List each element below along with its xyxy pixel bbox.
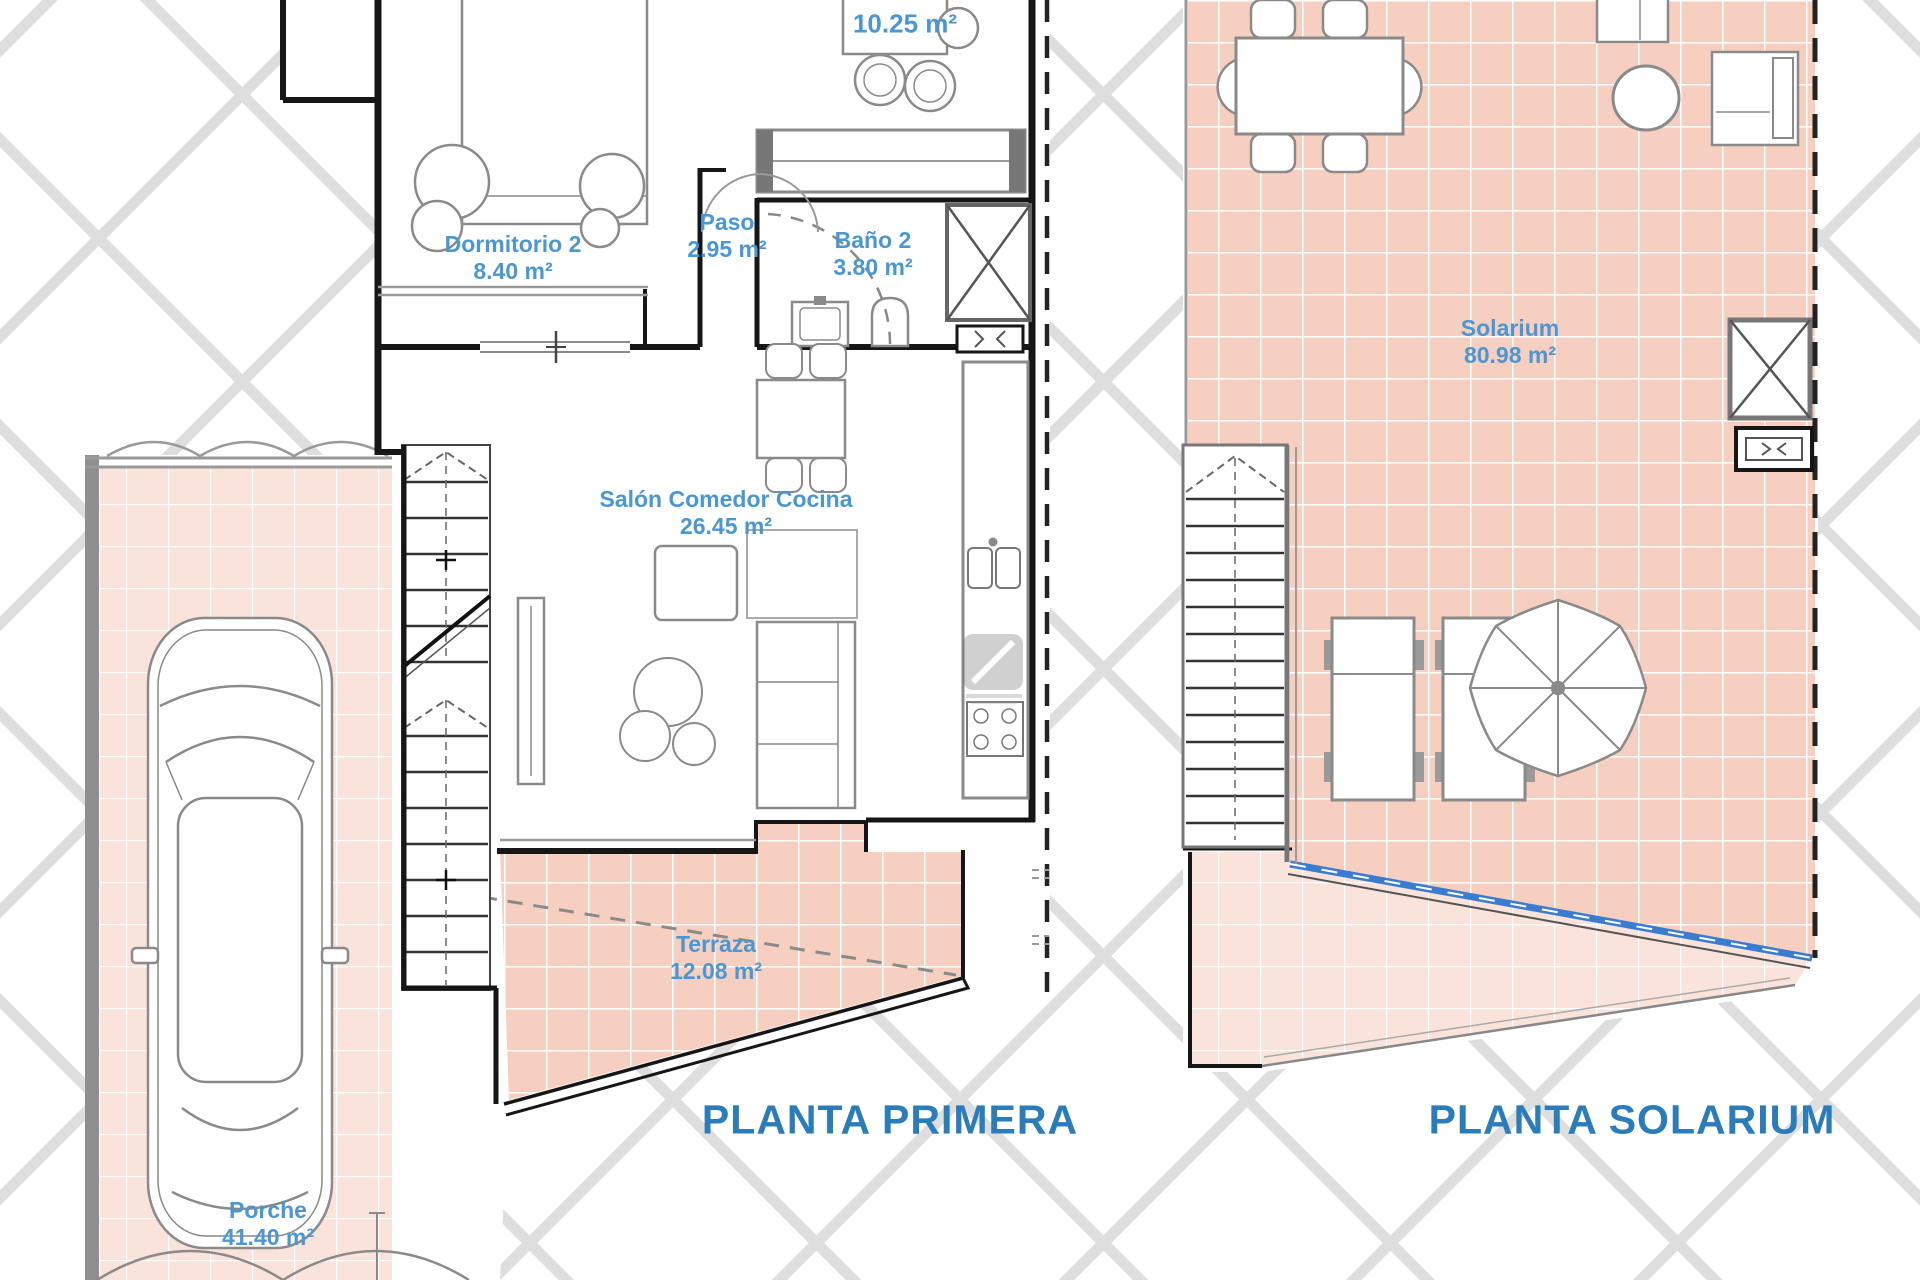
room-area: 80.98 m² (1461, 342, 1559, 369)
room-name: Dormitorio 2 (445, 231, 582, 258)
room-name: Solarium (1461, 315, 1559, 342)
floorplan-drawing (0, 0, 1920, 1280)
roof-vent (1736, 428, 1812, 470)
solarium-bar (1597, 0, 1668, 42)
planta-solarium-plan (1183, 0, 1818, 1072)
stairs-solarium (1183, 445, 1296, 864)
salon-dining-set (757, 344, 846, 492)
room-label-terraza: Terraza 12.08 m² (670, 931, 762, 985)
room-label-porche: Porche 41.40 m² (222, 1197, 314, 1251)
skylight (1730, 320, 1810, 418)
wardrobe (757, 130, 1025, 192)
rug (747, 530, 857, 618)
parasol (1470, 600, 1646, 776)
round-chair (1613, 66, 1679, 130)
room-area: 2.95 m² (687, 236, 766, 263)
room-label-upper-bedroom: 10.25 m² (853, 11, 957, 38)
stairs-primera (402, 445, 490, 990)
armchair (655, 546, 737, 620)
hob (967, 702, 1023, 756)
sofa (757, 622, 855, 808)
room-name: Salón Comedor Cocina (599, 486, 852, 513)
room-label-paso: Paso 2.95 m² (687, 209, 766, 263)
room-name: Baño 2 (833, 227, 912, 254)
car (132, 618, 348, 1248)
plan-title-solarium: PLANTA SOLARIUM (1429, 1097, 1836, 1144)
planta-primera-plan (85, 0, 1050, 1280)
bath-vent (957, 326, 1023, 352)
room-area: 26.45 m² (599, 513, 852, 540)
kitchen-counter (963, 362, 1028, 798)
sun-lounger-1 (1324, 618, 1424, 800)
room-label-solarium: Solarium 80.98 m² (1461, 315, 1559, 369)
room-area: 41.40 m² (222, 1224, 314, 1251)
plan-title-primera: PLANTA PRIMERA (702, 1097, 1078, 1144)
room-area: 3.80 m² (833, 254, 912, 281)
room-area: 12.08 m² (670, 958, 762, 985)
room-label-bano2: Baño 2 3.80 m² (833, 227, 912, 281)
kitchen-sink (968, 548, 992, 588)
room-name: Porche (222, 1197, 314, 1224)
room-area: 8.40 m² (445, 258, 582, 285)
room-label-dormitorio2: Dormitorio 2 8.40 m² (445, 231, 582, 285)
room-name: Terraza (670, 931, 762, 958)
room-area: 10.25 m² (853, 11, 957, 38)
porche-left-wall (85, 455, 99, 1280)
lounge-chair (1712, 52, 1798, 145)
room-label-salon: Salón Comedor Cocina 26.45 m² (599, 486, 852, 540)
room-name: Paso (687, 209, 766, 236)
